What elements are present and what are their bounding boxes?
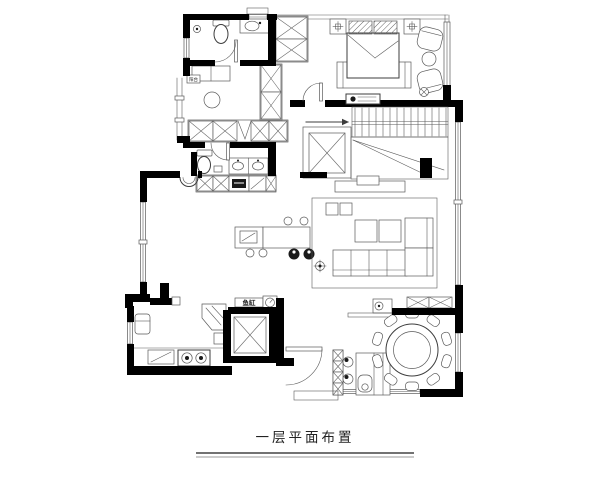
floor-drain-icon [193, 25, 200, 32]
kitchen-sink-icon [148, 350, 174, 364]
bar-stool [300, 217, 308, 225]
living-room [312, 198, 437, 288]
closet-note-label: 阳台 [189, 76, 198, 83]
dining-chair [371, 331, 383, 346]
nightstand-left [330, 19, 346, 34]
stair-direction-arrow [306, 119, 349, 125]
pillow [374, 21, 397, 34]
master-bathroom [193, 19, 269, 44]
powder-room [197, 150, 268, 174]
entry-step [294, 391, 338, 400]
dining-chair [426, 313, 442, 328]
stove-icon [178, 350, 210, 366]
stair-console [346, 94, 380, 104]
double-sink-vanity [229, 158, 268, 174]
bar-stool [259, 249, 267, 257]
kitchen [134, 304, 226, 366]
bidet-fixture [214, 166, 222, 172]
bar-chair [289, 249, 300, 260]
master-bedroom [275, 16, 444, 97]
bathroom-vanity [240, 19, 269, 33]
kitchen-island [235, 217, 315, 260]
dining-appliance [373, 299, 392, 313]
drain-symbol-icon [420, 88, 429, 97]
elevator [303, 127, 351, 178]
drawing-title-block: 一层平面布置 [196, 430, 414, 457]
pantry [234, 317, 266, 353]
fish-tank-label: 鱼缸 [243, 298, 257, 307]
toilet-icon [197, 150, 212, 174]
floor-lamp-icon [314, 260, 326, 272]
nightstand-right [404, 19, 420, 34]
side-table [340, 203, 352, 215]
bed [337, 21, 411, 88]
hallway-cabinets [196, 175, 276, 192]
bar-chair [304, 249, 315, 260]
side-table [422, 52, 436, 66]
floor-plan-page: 鱼缸 阳台 一层平面布置 [0, 0, 600, 480]
dining-chair [406, 382, 419, 391]
bar-stool [284, 217, 292, 225]
vase-icon [343, 357, 353, 367]
walk-in-closet [187, 64, 288, 142]
pillow [349, 21, 372, 34]
powder-room-door [211, 143, 230, 160]
dining-chair [440, 331, 452, 346]
dining-chair [426, 372, 442, 387]
dining-chair [383, 313, 399, 328]
drawing-title: 一层平面布置 [256, 430, 355, 446]
coffee-table [379, 220, 401, 242]
side-table [326, 203, 338, 215]
kitchen-appliance [135, 314, 150, 334]
dining-chair [440, 354, 452, 369]
vase-icon [343, 374, 353, 384]
stair-treads [355, 108, 446, 136]
floor-plan-svg: 鱼缸 阳台 一层平面布置 [0, 0, 600, 480]
coffee-table [355, 220, 377, 242]
toilet-icon [213, 20, 229, 44]
closet-stool [204, 92, 220, 108]
bedroom-door [303, 83, 323, 101]
bar-stool [246, 249, 254, 257]
